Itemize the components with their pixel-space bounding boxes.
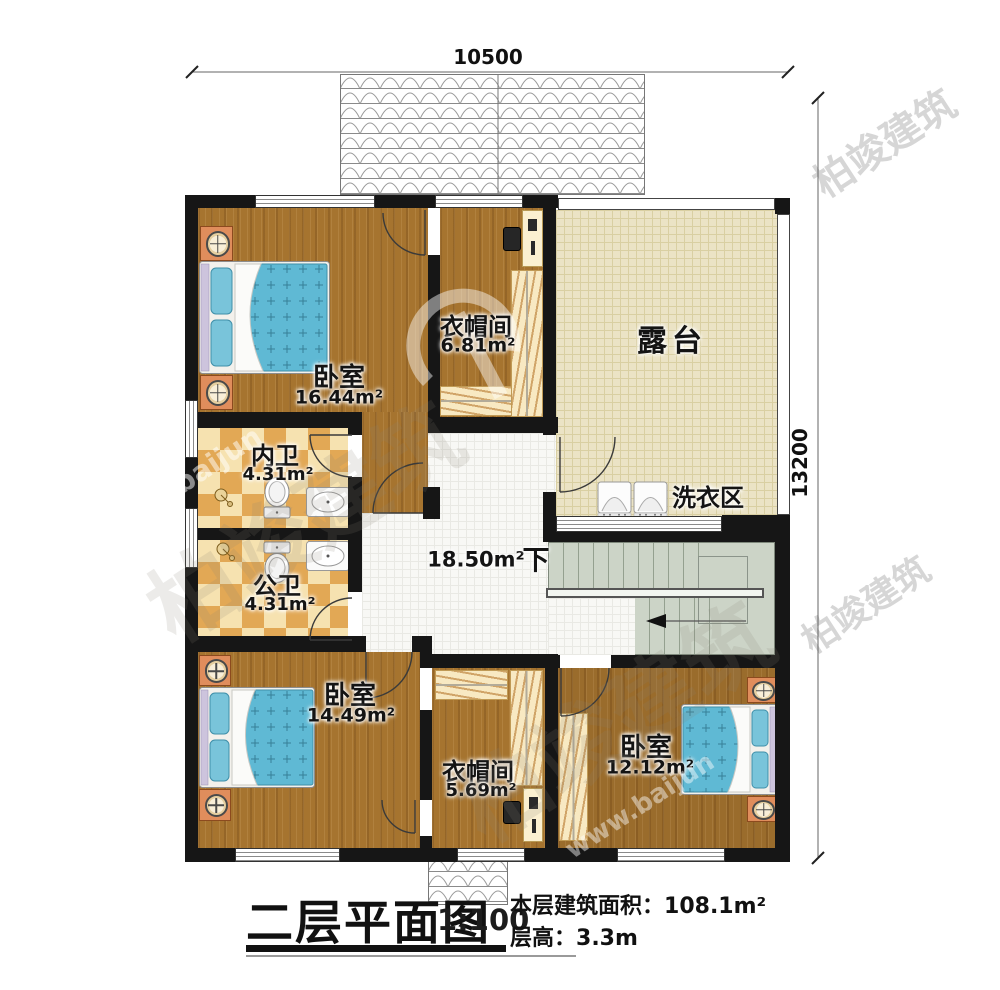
- lamp-icon: [752, 681, 775, 701]
- wardrobe: [440, 386, 512, 416]
- wardrobe: [435, 670, 508, 700]
- wall: [348, 412, 362, 435]
- stair-treads-upper: [549, 543, 709, 589]
- terrace-parapet: [558, 198, 775, 210]
- hall-floor-understair: [548, 598, 635, 655]
- room-area-bedroom-br: 12.12m²: [606, 759, 694, 778]
- wall: [185, 412, 362, 428]
- title-underline-thin: [246, 955, 576, 957]
- lamp-icon: [752, 800, 775, 820]
- room-label-laundry: 洗衣区: [672, 486, 744, 510]
- nightstand: [200, 226, 233, 261]
- window: [617, 848, 725, 862]
- title-underline: [246, 945, 506, 952]
- room-area-bath-public: 4.31m²: [244, 596, 315, 614]
- stair-handrail: [546, 588, 764, 598]
- chair: [503, 227, 521, 251]
- wall: [348, 477, 362, 528]
- terrace-floor: [556, 210, 777, 516]
- watermark-brand: 柏竣建筑: [790, 542, 939, 664]
- dimension-width: 10500: [453, 45, 523, 69]
- wall: [420, 836, 432, 848]
- room-area-hall: 18.50m²: [427, 550, 525, 571]
- dressing-table: [522, 210, 543, 267]
- stairs-down-label: 下: [523, 548, 550, 575]
- shower-valve-icon: [215, 541, 237, 563]
- watermark-brand: 柏竣建筑: [800, 73, 966, 209]
- bed: [199, 687, 315, 788]
- floor-height-label: 层高：: [510, 926, 576, 951]
- dressing-table: [523, 788, 543, 842]
- wall: [543, 195, 556, 435]
- wall: [611, 655, 790, 668]
- wardrobe: [511, 270, 543, 417]
- wardrobe: [559, 713, 588, 841]
- nightstand: [199, 655, 231, 686]
- mirror-icon: [529, 797, 538, 809]
- corridor-floor: [362, 412, 428, 513]
- perfume-icon: [531, 241, 535, 255]
- window: [185, 508, 198, 568]
- wall: [432, 654, 558, 668]
- sink: [306, 541, 350, 571]
- wall: [348, 636, 362, 652]
- wall: [185, 636, 366, 652]
- window: [185, 400, 198, 458]
- washing-machine: [633, 481, 668, 517]
- window: [435, 195, 523, 208]
- lamp-icon: [206, 231, 230, 257]
- room-label-terrace: 露台: [637, 327, 707, 357]
- perfume-icon: [532, 819, 536, 833]
- wall: [428, 255, 440, 417]
- room-area-bath-inner: 4.31m²: [242, 466, 313, 484]
- window: [255, 195, 375, 208]
- floor-area-value: 108.1m²: [664, 894, 766, 919]
- room-area-cloakroom-bottom: 5.69m²: [445, 782, 516, 800]
- washing-machine: [597, 481, 632, 517]
- lamp-icon: [206, 380, 230, 406]
- shower-valve-icon: [213, 487, 235, 509]
- wall: [775, 198, 790, 214]
- floor-area-label: 本层建筑面积：: [510, 894, 664, 919]
- window: [235, 848, 340, 862]
- wall: [722, 515, 775, 532]
- wardrobe: [510, 670, 543, 786]
- wall: [428, 417, 558, 433]
- wall: [412, 636, 432, 652]
- nightstand: [747, 796, 778, 822]
- roof-tiles-top: [340, 74, 645, 195]
- laundry-counter: [556, 516, 722, 532]
- wall: [348, 540, 362, 592]
- floor-height-value: 3.3m: [576, 926, 638, 951]
- room-area-cloakroom-top: 6.81m²: [441, 337, 516, 356]
- wall: [423, 487, 440, 519]
- lamp-icon: [205, 659, 229, 682]
- nightstand: [747, 677, 778, 703]
- wall: [420, 652, 432, 668]
- dimension-height: 13200: [788, 428, 812, 498]
- nightstand: [199, 789, 231, 821]
- floor-height-row: 层高：3.3m: [510, 920, 638, 952]
- room-area-bedroom-tl: 16.44m²: [295, 389, 383, 408]
- wall: [775, 515, 790, 862]
- wall: [185, 528, 362, 540]
- wall: [420, 710, 432, 800]
- floor-plan: 10500 13200 卧室 16.44m² 衣帽间 6.81m² 露台 洗衣区…: [0, 0, 1000, 990]
- wall: [545, 654, 558, 848]
- bed: [199, 261, 330, 374]
- lamp-icon: [205, 794, 229, 818]
- chair: [503, 801, 521, 824]
- mirror-icon: [528, 219, 537, 231]
- bed: [681, 704, 778, 795]
- room-area-bedroom-bl: 14.49m²: [307, 707, 395, 726]
- floor-area-row: 本层建筑面积：108.1m²: [510, 888, 766, 920]
- nightstand: [200, 375, 233, 410]
- sink: [306, 487, 350, 517]
- window: [457, 848, 525, 862]
